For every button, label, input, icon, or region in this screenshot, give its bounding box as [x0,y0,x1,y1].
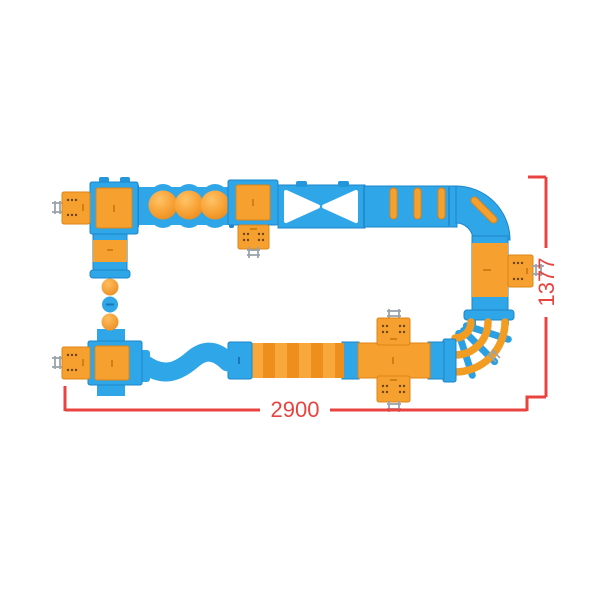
corner-elbow-top-right [456,186,510,240]
entry-box-bottom [377,376,410,412]
dome-tunnel [134,184,234,228]
tunnel-rib [438,188,445,219]
height-dimension-label: 1377 [534,258,559,307]
x-crossing-tunnel [278,181,365,228]
striped-tunnel [252,343,344,378]
wavy-tunnel [140,350,228,382]
rope-flange [443,339,456,382]
connector-tab [296,181,307,187]
cross-module-bottom-right [342,309,444,412]
end-cap-bottom-left [52,347,90,379]
crawl-box-top-mid [228,180,278,258]
entry-box [238,225,269,258]
right-pipe [472,236,508,314]
ribbed-tunnel [364,186,457,227]
link-lip [90,270,130,278]
product-diagram-canvas: 2900 1377 [0,0,600,600]
dome-ball [175,191,204,220]
dome-ball [201,191,230,220]
step-ball-orange [102,279,119,296]
width-dimension-label: 2900 [271,397,320,422]
connector-tab [338,181,349,187]
ball-steps [102,279,119,331]
dome-ball [149,191,178,220]
crawl-box-bottom-left [88,329,142,396]
play-tunnel-top-view: 2900 1377 [0,0,600,600]
dim-step [527,397,546,411]
end-cap-top-left [52,192,90,224]
entry-box-top [377,309,410,345]
vertical-link [90,234,130,278]
step-ball-orange [102,314,119,331]
crawl-box-top-left [90,177,138,234]
rope-curve-bridge [455,322,508,375]
tunnel-rib [414,188,421,219]
tunnel-rib [390,188,397,219]
stub-bottom [97,384,125,396]
